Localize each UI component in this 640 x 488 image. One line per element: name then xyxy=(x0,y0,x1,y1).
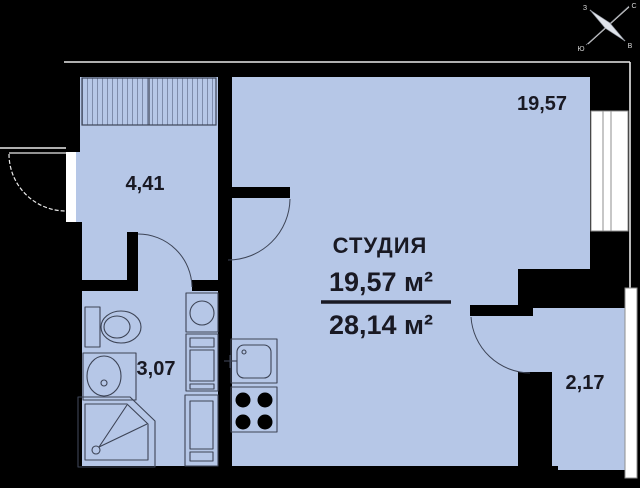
loggia-glazing xyxy=(625,288,637,478)
compass-west-label: З xyxy=(583,5,587,12)
compass-north-label: С xyxy=(631,3,636,10)
plan-title: СТУДИЯ xyxy=(333,233,428,258)
bathroom-area-label: 3,07 xyxy=(137,358,176,380)
total-area-value: 28,14 м² xyxy=(329,310,433,340)
floor-plan: С Ю В З 4,41 19,57 3,07 2,17 СТУДИЯ 19,5… xyxy=(0,0,640,488)
compass-east-label: В xyxy=(628,43,633,50)
loggia-area-label: 2,17 xyxy=(566,372,605,394)
living-area-value: 19,57 м² xyxy=(329,267,433,297)
wardrobe xyxy=(82,78,216,125)
loggia-door-gap xyxy=(518,308,552,372)
studio-area-label: 19,57 xyxy=(517,93,567,115)
floor-plan-drawing: С Ю В З 4,41 19,57 3,07 2,17 СТУДИЯ 19,5… xyxy=(0,0,640,488)
studio-door-leaf xyxy=(218,187,290,198)
compass-south-label: Ю xyxy=(577,46,584,53)
window xyxy=(591,111,628,231)
hall-area-label: 4,41 xyxy=(126,173,165,195)
bathroom-door-leaf xyxy=(127,232,138,281)
loggia-door-leaf xyxy=(470,305,533,316)
bathroom-door-gap xyxy=(138,280,192,291)
studio-floor-lower xyxy=(232,269,518,468)
